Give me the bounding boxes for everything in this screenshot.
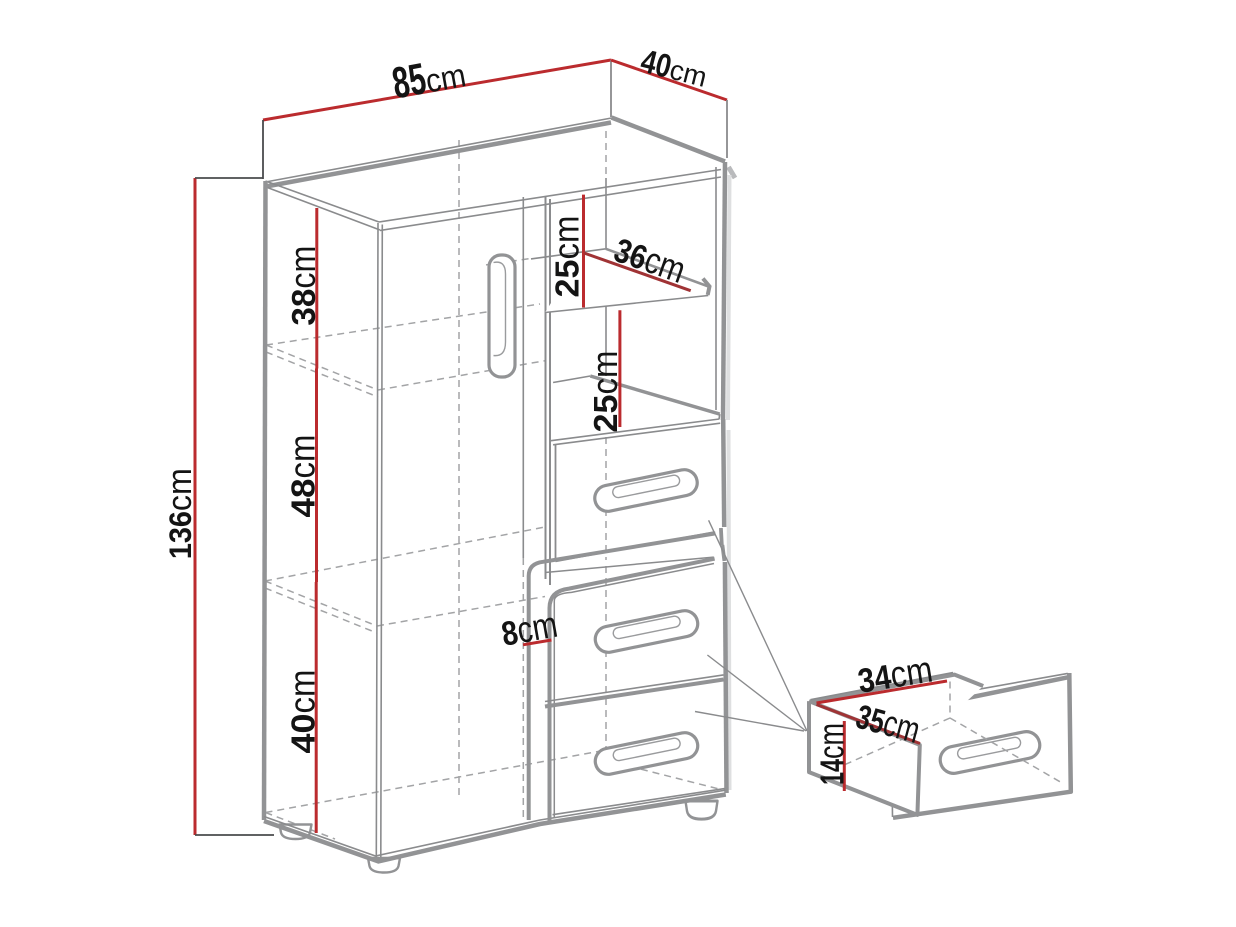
svg-text:38cm: 38cm	[282, 246, 323, 326]
svg-text:25cm: 25cm	[584, 351, 625, 433]
svg-text:14cm: 14cm	[811, 723, 852, 785]
svg-text:136cm: 136cm	[161, 468, 199, 559]
svg-text:48cm: 48cm	[282, 435, 323, 518]
svg-text:40cm: 40cm	[282, 670, 323, 754]
svg-text:25cm: 25cm	[546, 216, 587, 298]
svg-text:85cm: 85cm	[389, 47, 470, 108]
svg-text:40cm: 40cm	[637, 42, 711, 94]
